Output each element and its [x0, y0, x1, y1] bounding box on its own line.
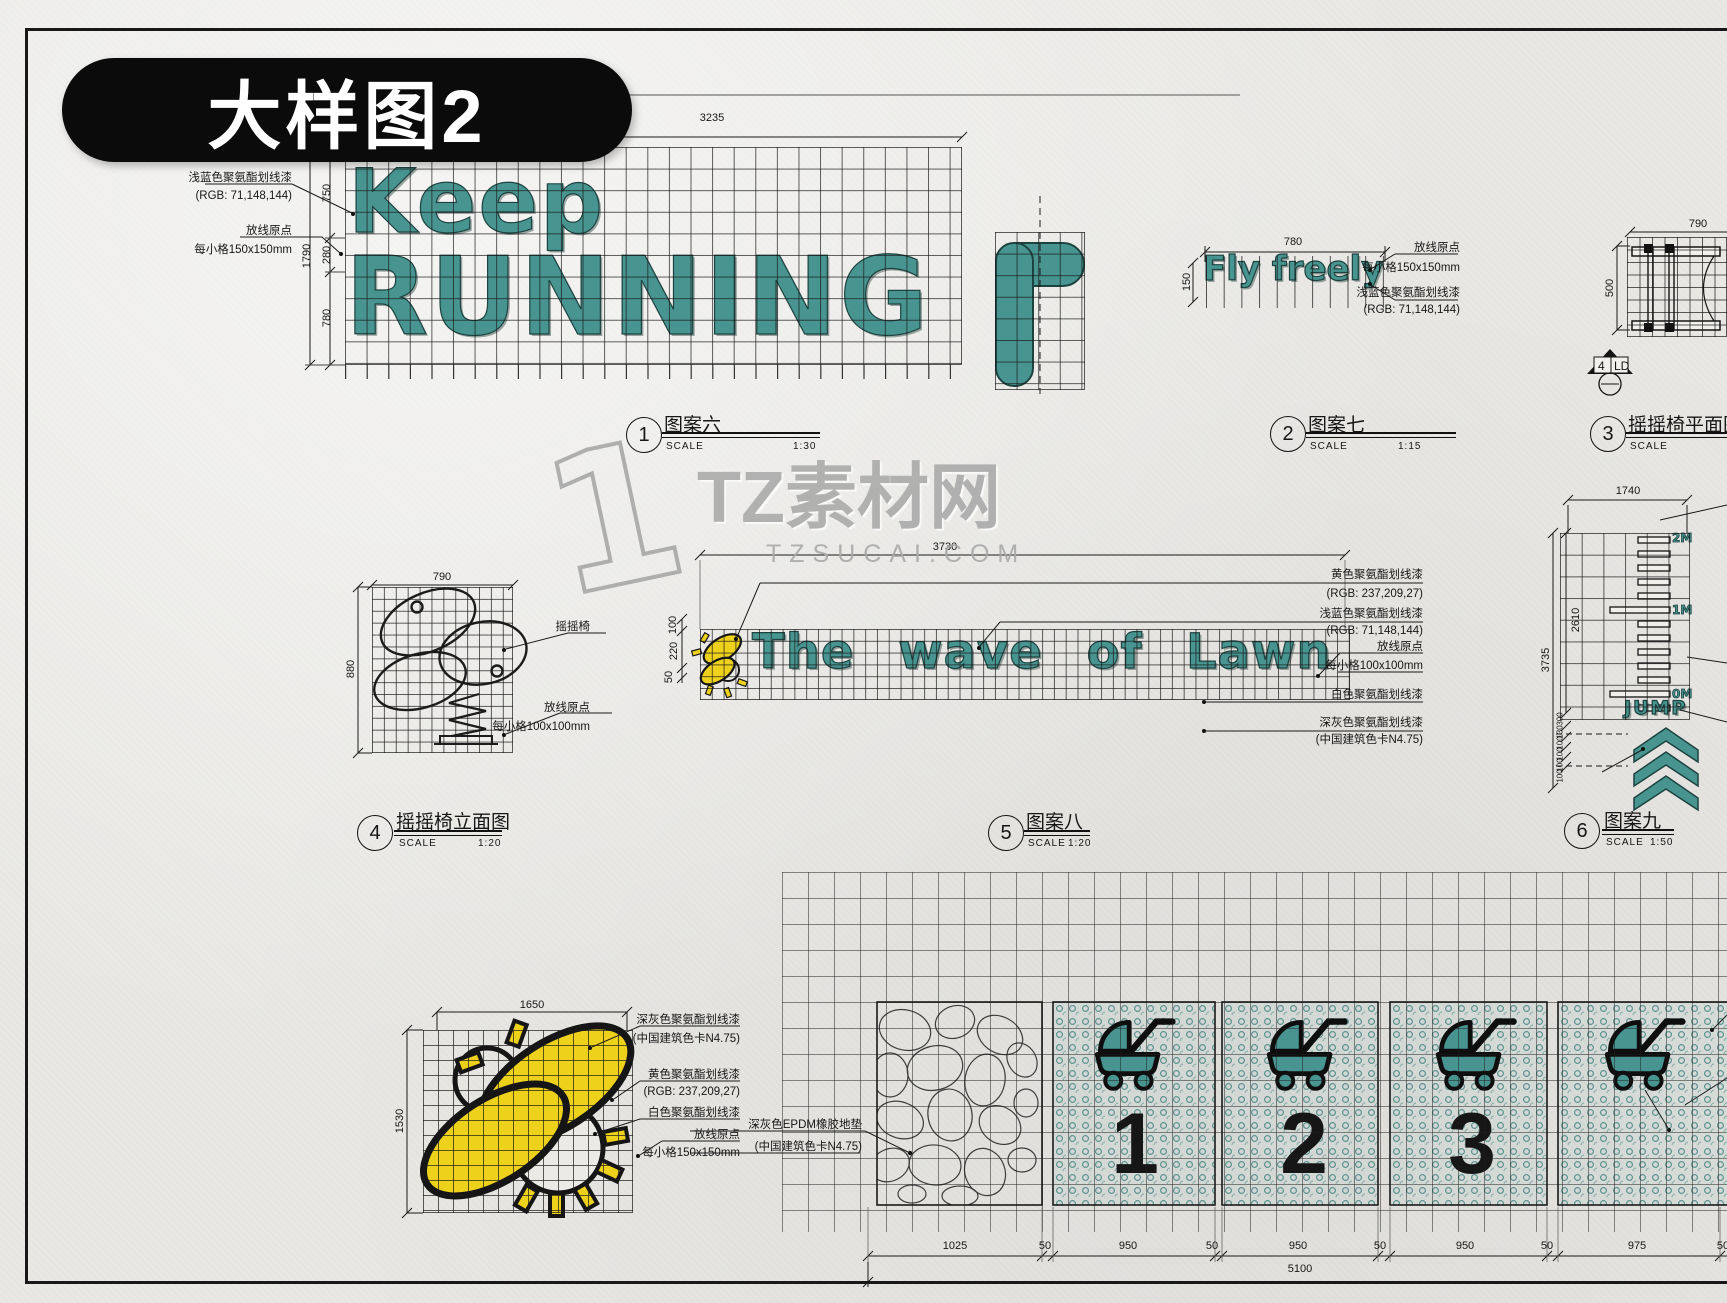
- dimension-line-layer: [0, 0, 1727, 1303]
- frame-left-line: [25, 28, 28, 1284]
- watermark-brand: TZ素材网: [697, 438, 1001, 543]
- sheet-title-pill: 大样图2: [62, 58, 632, 162]
- frame-top-line: [25, 28, 1727, 31]
- frame-bottom-line: [25, 1281, 1727, 1284]
- section-marker-icon: [1587, 349, 1633, 395]
- detail-drawing-sheet: 大样图2 1 TZ素材网 TZSUCAI.COM Keep RUNNING 32…: [0, 0, 1727, 1303]
- sheet-title: 大样图2: [207, 57, 486, 164]
- watermark-domain: TZSUCAI.COM: [766, 540, 1026, 569]
